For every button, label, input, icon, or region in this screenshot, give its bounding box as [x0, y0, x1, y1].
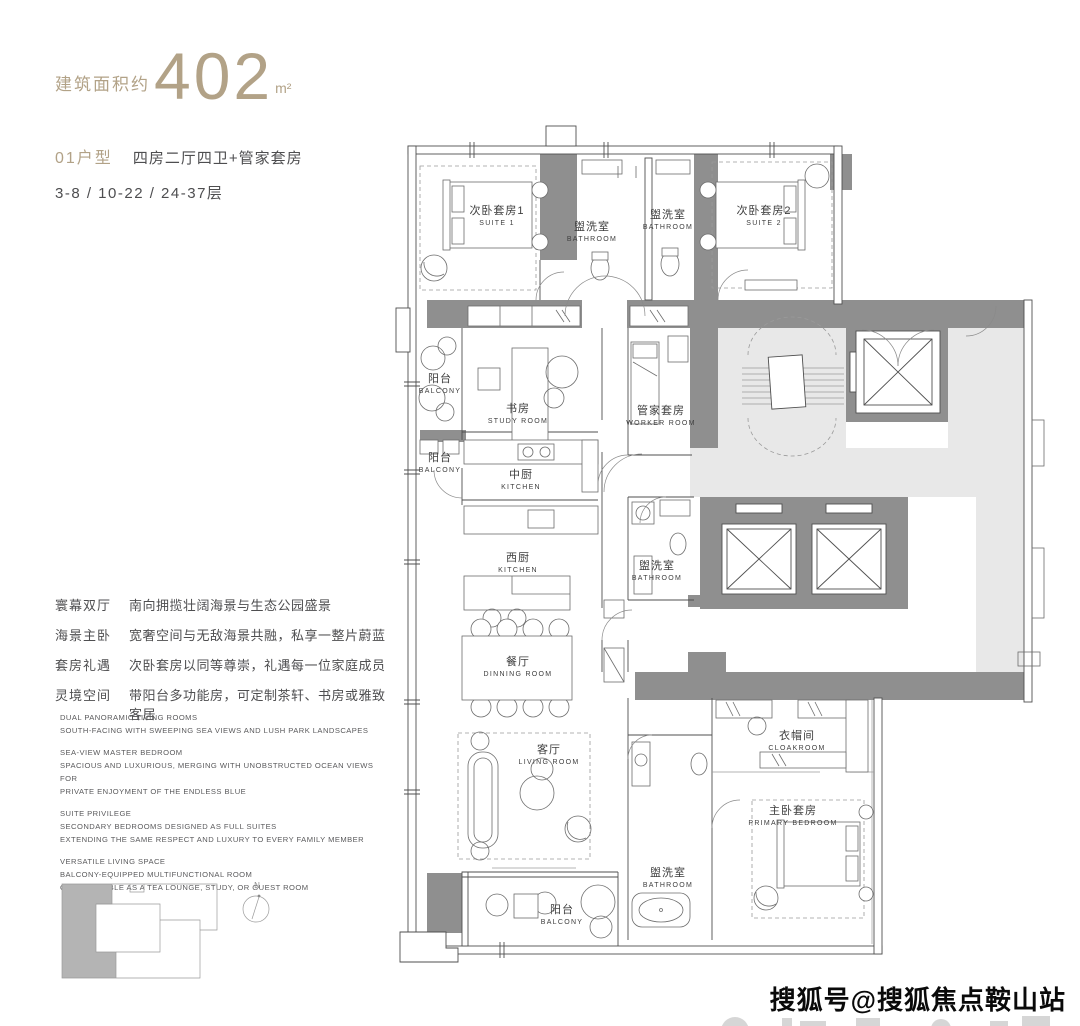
room-label-worker-en: WORKER ROOM [626, 420, 696, 427]
room-label-primary-cn: 主卧套房 [769, 804, 817, 817]
room-label-bath1-cn: 盥洗室 [574, 219, 610, 233]
room-label-suite1-cn: 次卧套房1 [469, 203, 524, 217]
room-label-bath2-en: BATHROOM [643, 224, 693, 231]
wall-counters [468, 306, 688, 326]
key-plan [62, 884, 217, 978]
room-label-balcony3-cn: 阳台 [550, 902, 574, 916]
floorplan-page: 建筑面积约 402 m² 01户型 四房二厅四卫+管家套房 3-8 / 10-2… [0, 0, 1080, 1026]
room-label-cloak-cn: 衣帽间 [779, 728, 815, 742]
room-label-suite2-cn: 次卧套房2 [736, 203, 791, 217]
room-label-balcony1-en: BALCONY [419, 388, 462, 395]
room-label-study-en: STUDY ROOM [488, 418, 548, 425]
watermark: 搜狐号@搜狐焦点鞍山站 [770, 980, 1066, 1017]
room-label-primary-en: PRIMARY BEDROOM [748, 820, 837, 827]
room-label-kitchen-west-cn: 西厨 [506, 551, 530, 564]
room-label-bath3-en: BATHROOM [632, 575, 682, 582]
room-label-living-cn: 客厅 [537, 742, 561, 756]
room-label-kitchen-mid-en: KITCHEN [501, 484, 541, 491]
room-label-living-en: LIVING ROOM [519, 759, 580, 766]
bottom-cutoff-graphics [721, 1016, 1050, 1026]
room-label-kitchen-mid-cn: 中厨 [509, 468, 533, 481]
room-label-suite1-en: SUITE 1 [479, 220, 515, 227]
room-label-bath2-cn: 盥洗室 [650, 207, 686, 221]
primary-bedroom-furniture [752, 800, 873, 918]
suite1-furniture [420, 166, 548, 290]
room-label-balcony3-en: BALCONY [541, 919, 584, 926]
room-label-study-cn: 书房 [506, 402, 530, 415]
bottom-bathroom-fixtures [632, 742, 707, 927]
room-label-bath1-en: BATHROOM [567, 236, 617, 243]
room-label-balcony2-en: BALCONY [419, 467, 462, 474]
compass: N [243, 881, 269, 922]
room-label-suite2-en: SUITE 2 [746, 220, 782, 227]
room-label-balcony1-cn: 阳台 [428, 371, 452, 385]
room-label-dining-en: DINNING ROOM [484, 671, 553, 678]
room-label-kitchen-west-en: KITCHEN [498, 567, 538, 574]
room-label-worker-cn: 管家套房 [637, 403, 685, 417]
room-label-bath3-cn: 盥洗室 [639, 558, 675, 572]
room-label-bath4-en: BATHROOM [643, 882, 693, 889]
compass-north-label: N [254, 881, 260, 890]
room-label-balcony2-cn: 阳台 [428, 450, 452, 464]
floor-plan: 次卧套房1 SUITE 1 盥洗室 BATHROOM 盥洗室 BATHROOM … [0, 0, 1080, 1026]
dining-furniture [462, 619, 572, 717]
study-furniture [478, 348, 578, 442]
living-furniture [458, 732, 591, 868]
room-label-cloak-en: CLOAKROOM [768, 745, 825, 752]
room-label-dining-cn: 餐厅 [506, 654, 530, 668]
room-label-bath4-cn: 盥洗室 [650, 865, 686, 879]
